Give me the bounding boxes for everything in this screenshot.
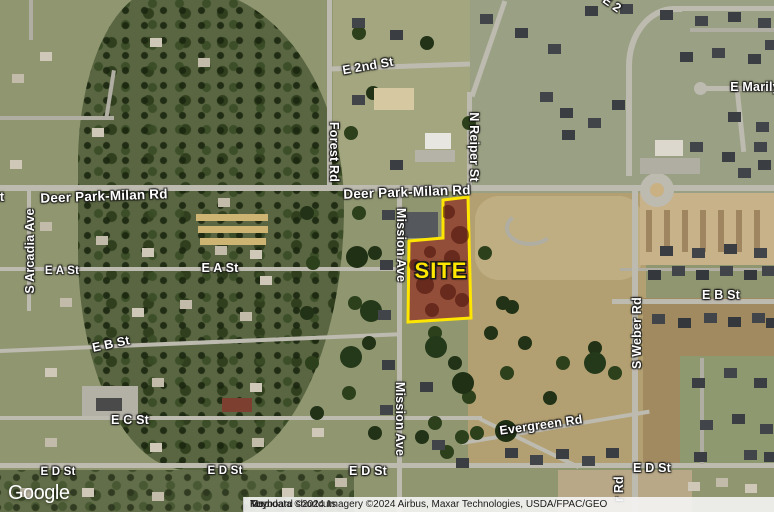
street-label-e-a-st-west: E A St xyxy=(45,265,79,277)
street-label-n-reiper-st: N Reiper St xyxy=(467,112,481,182)
google-logo[interactable]: Google xyxy=(8,482,70,505)
street-label-e-d-st-center: E D St xyxy=(349,464,387,478)
terms-link[interactable]: Term xyxy=(243,499,279,510)
street-label-e-marilyn-partial: E Marily xyxy=(730,80,774,94)
site-parcel-overlay xyxy=(0,0,774,512)
street-label-mission-ave-north: Mission Ave xyxy=(394,208,408,282)
street-label-s-weber-rd: S Weber Rd xyxy=(630,297,644,369)
street-label-forest-rd: Forest Rd xyxy=(327,122,341,182)
street-label-e-c-st: E C St xyxy=(111,413,149,427)
street-label-e-a-st-center: E A St xyxy=(201,261,238,275)
street-label-e-d-st-center-west: E D St xyxy=(207,465,242,477)
street-label-e-b-st-east: E B St xyxy=(702,288,740,302)
site-label: SITE xyxy=(415,258,468,284)
street-label-mission-ave-south: Mission Ave xyxy=(393,382,407,456)
street-label-e-d-st-west: E D St xyxy=(40,466,75,478)
map-data-attribution: Map data ©2024 Imagery ©2024 Airbus, Max… xyxy=(243,499,614,510)
attribution-bar: Keyboard shortcuts Map data ©2024 Imager… xyxy=(243,497,774,512)
street-label-left-edge-partial: t xyxy=(0,190,4,204)
street-label-e-d-st-east: E D St xyxy=(633,461,671,475)
map-canvas[interactable]: SITE E 2nd St E 2 Forest Rd N Reiper St … xyxy=(0,0,774,512)
street-label-s-arcadia-ave: S Arcadia Ave xyxy=(23,208,37,293)
